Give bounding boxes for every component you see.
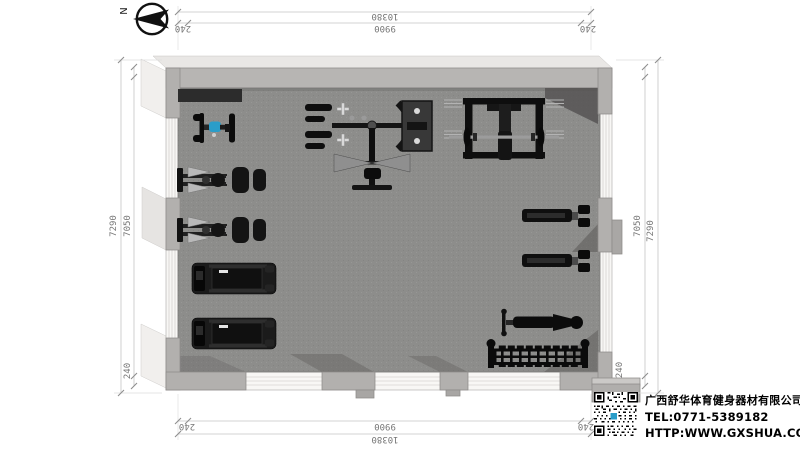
treadmill xyxy=(192,318,276,349)
company-info: 广西舒华体育健身器材有限公司 TEL:0771-5389182 HTTP:WWW… xyxy=(594,392,800,440)
floor-mat xyxy=(178,89,242,102)
dim-left-corner-bottom: 240 xyxy=(123,363,133,379)
north-label: N xyxy=(119,7,130,14)
floor-plan: 10380 9900 240 240 9900 10380 240 240 72… xyxy=(0,0,800,450)
dim-left-outer: 7290 xyxy=(109,215,119,237)
dim-top-corner-left: 240 xyxy=(175,23,191,33)
company-name: 广西舒华体育健身器材有限公司 xyxy=(645,392,800,408)
dim-bottom-inner: 9900 xyxy=(374,421,396,431)
dim-right-corner-bottom: 240 xyxy=(615,362,625,378)
dim-top-corner-right: 240 xyxy=(580,23,596,33)
treadmill xyxy=(192,263,276,294)
company-website: HTTP:WWW.GXSHUA.COM xyxy=(645,426,800,440)
dim-right-outer: 7290 xyxy=(646,220,656,242)
qr-logo-mark xyxy=(611,413,617,419)
dim-top-outer: 10380 xyxy=(371,11,398,21)
dim-bottom-corner-left: 240 xyxy=(179,421,195,431)
qr-code xyxy=(594,392,638,436)
dim-bottom-corner-right: 240 xyxy=(578,421,594,431)
dim-top-inner: 9900 xyxy=(374,23,396,33)
company-tel: TEL:0771-5389182 xyxy=(645,410,800,424)
dim-bottom-outer: 10380 xyxy=(371,434,398,444)
dim-right-inner: 7050 xyxy=(633,215,643,237)
north-arrow: N xyxy=(119,4,169,34)
dim-left-inner: 7050 xyxy=(123,215,133,237)
